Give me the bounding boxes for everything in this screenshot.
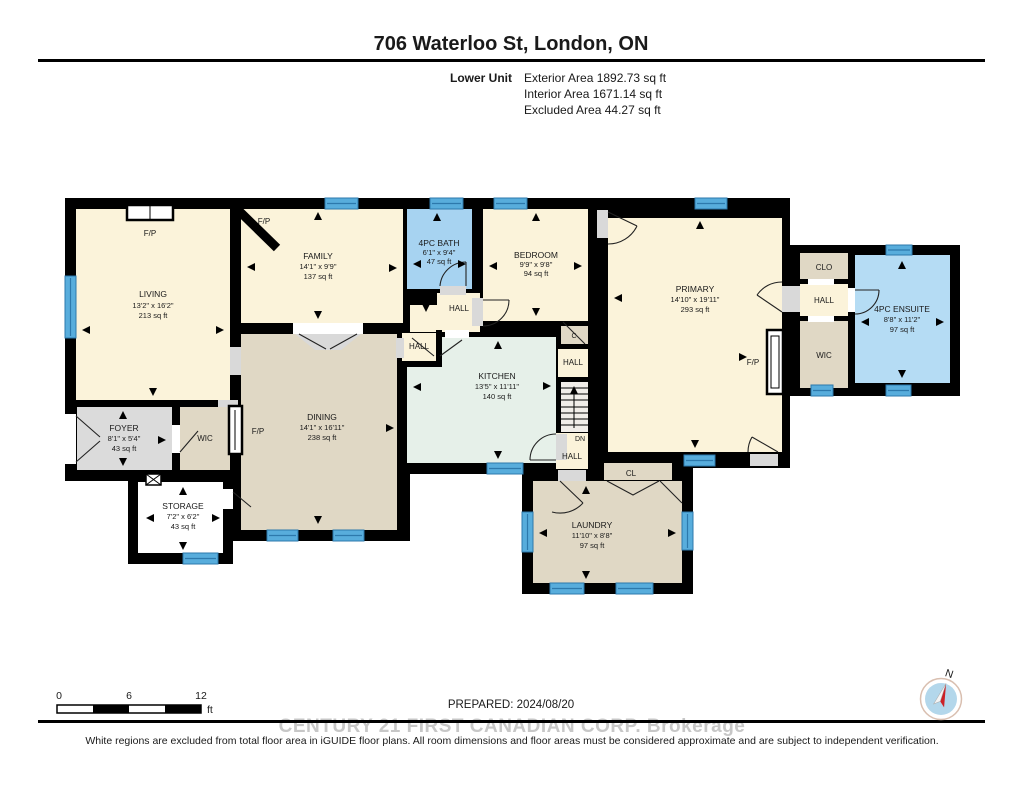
svg-text:DINING: DINING	[307, 412, 337, 422]
stairs-down-label: DN	[575, 436, 585, 443]
hall-label-5: HALL	[814, 296, 835, 305]
svg-text:213 sq ft: 213 sq ft	[139, 311, 169, 320]
svg-text:4PC ENSUITE: 4PC ENSUITE	[874, 304, 930, 314]
floor-plan-page: 706 Waterloo St, London, ON Lower Unit E…	[0, 0, 1024, 791]
scale-unit: ft	[207, 704, 213, 716]
cl-closet-label: CL	[626, 469, 637, 478]
hall-label-2: HALL	[409, 342, 430, 351]
scale-tick-6: 6	[126, 690, 132, 702]
floor-plan: 706 Waterloo St, London, ON Lower Unit E…	[0, 0, 1024, 791]
svg-text:14'10" x 19'11": 14'10" x 19'11"	[671, 295, 720, 304]
room-label-foyer: FOYER 8'1" x 5'4" 43 sq ft	[108, 423, 141, 453]
svg-text:FAMILY: FAMILY	[303, 251, 333, 261]
svg-text:11'10" x 8'8": 11'10" x 8'8"	[572, 531, 613, 540]
svg-text:293 sq ft: 293 sq ft	[681, 305, 711, 314]
header: 706 Waterloo St, London, ON Lower Unit E…	[38, 33, 985, 117]
fp-label-dining: F/P	[252, 427, 264, 436]
primary-fireplace	[767, 330, 783, 394]
svg-text:4PC BATH: 4PC BATH	[419, 238, 460, 248]
svg-text:13'2" x 16'2": 13'2" x 16'2"	[132, 301, 173, 310]
compass-north-label: N	[943, 667, 954, 681]
hall-label-1: HALL	[449, 304, 470, 313]
svg-text:FOYER: FOYER	[109, 423, 138, 433]
hall-label-4: HALL	[562, 452, 583, 461]
svg-text:97 sq ft: 97 sq ft	[890, 325, 916, 334]
excluded-area: Excluded Area 44.27 sq ft	[524, 103, 661, 117]
svg-text:LIVING: LIVING	[139, 289, 167, 299]
disclaimer-text: White regions are excluded from total fl…	[85, 735, 938, 747]
compass: N	[921, 667, 962, 720]
svg-text:43 sq ft: 43 sq ft	[171, 522, 197, 531]
unit-label: Lower Unit	[450, 71, 512, 85]
footer: 0 6 12 ft PREPARED: 2024/08/20 CENTURY 2…	[38, 667, 985, 747]
interior-area: Interior Area 1671.14 sq ft	[524, 87, 663, 101]
wic-label-left: WIC	[197, 434, 213, 443]
room-closet-cl	[604, 463, 672, 480]
svg-text:94 sq ft: 94 sq ft	[524, 269, 550, 278]
clo-label: CLO	[816, 263, 832, 272]
prepared-date: PREPARED: 2024/08/20	[448, 699, 574, 711]
svg-text:238 sq ft: 238 sq ft	[308, 433, 338, 442]
svg-text:8'1" x 5'4": 8'1" x 5'4"	[108, 434, 141, 443]
room-primary	[608, 218, 782, 452]
scale-tick-12: 12	[195, 690, 207, 702]
footer-divider	[38, 720, 985, 723]
fp-label-primary: F/P	[747, 358, 759, 367]
page-title: 706 Waterloo St, London, ON	[374, 33, 649, 55]
svg-text:47 sq ft: 47 sq ft	[427, 257, 453, 266]
c-closet-label: C	[571, 333, 576, 340]
brokerage-watermark: CENTURY 21 FIRST CANADIAN CORP. Brokerag…	[279, 716, 746, 737]
svg-text:8'8" x 11'2": 8'8" x 11'2"	[884, 315, 921, 324]
svg-text:7'2" x 6'2": 7'2" x 6'2"	[167, 512, 200, 521]
svg-text:43 sq ft: 43 sq ft	[112, 444, 138, 453]
svg-text:140 sq ft: 140 sq ft	[483, 392, 513, 401]
svg-text:14'1" x 16'11": 14'1" x 16'11"	[300, 423, 345, 432]
svg-text:BEDROOM: BEDROOM	[514, 250, 558, 260]
svg-text:14'1" x 9'9": 14'1" x 9'9"	[300, 262, 337, 271]
fp-label-family: F/P	[258, 217, 270, 226]
svg-text:LAUNDRY: LAUNDRY	[572, 520, 613, 530]
wic-label-right: WIC	[816, 351, 832, 360]
svg-text:97 sq ft: 97 sq ft	[580, 541, 606, 550]
room-label-family: FAMILY 14'1" x 9'9" 137 sq ft	[300, 251, 337, 281]
fp-label-living: F/P	[144, 229, 156, 238]
hall-nook	[410, 305, 437, 332]
scale-bar: 0 6 12 ft	[56, 690, 213, 716]
scale-tick-0: 0	[56, 690, 62, 702]
room-dining	[241, 334, 397, 530]
svg-text:KITCHEN: KITCHEN	[478, 371, 515, 381]
svg-text:13'5" x 11'11": 13'5" x 11'11"	[475, 382, 520, 391]
header-divider	[38, 59, 985, 62]
exterior-area: Exterior Area 1892.73 sq ft	[524, 71, 667, 85]
svg-text:PRIMARY: PRIMARY	[676, 284, 715, 294]
hall-label-3: HALL	[563, 358, 584, 367]
svg-text:6'1" x 9'4": 6'1" x 9'4"	[423, 248, 456, 257]
svg-text:STORAGE: STORAGE	[162, 501, 204, 511]
svg-text:137 sq ft: 137 sq ft	[304, 272, 334, 281]
svg-text:9'9" x 9'8": 9'9" x 9'8"	[520, 260, 553, 269]
